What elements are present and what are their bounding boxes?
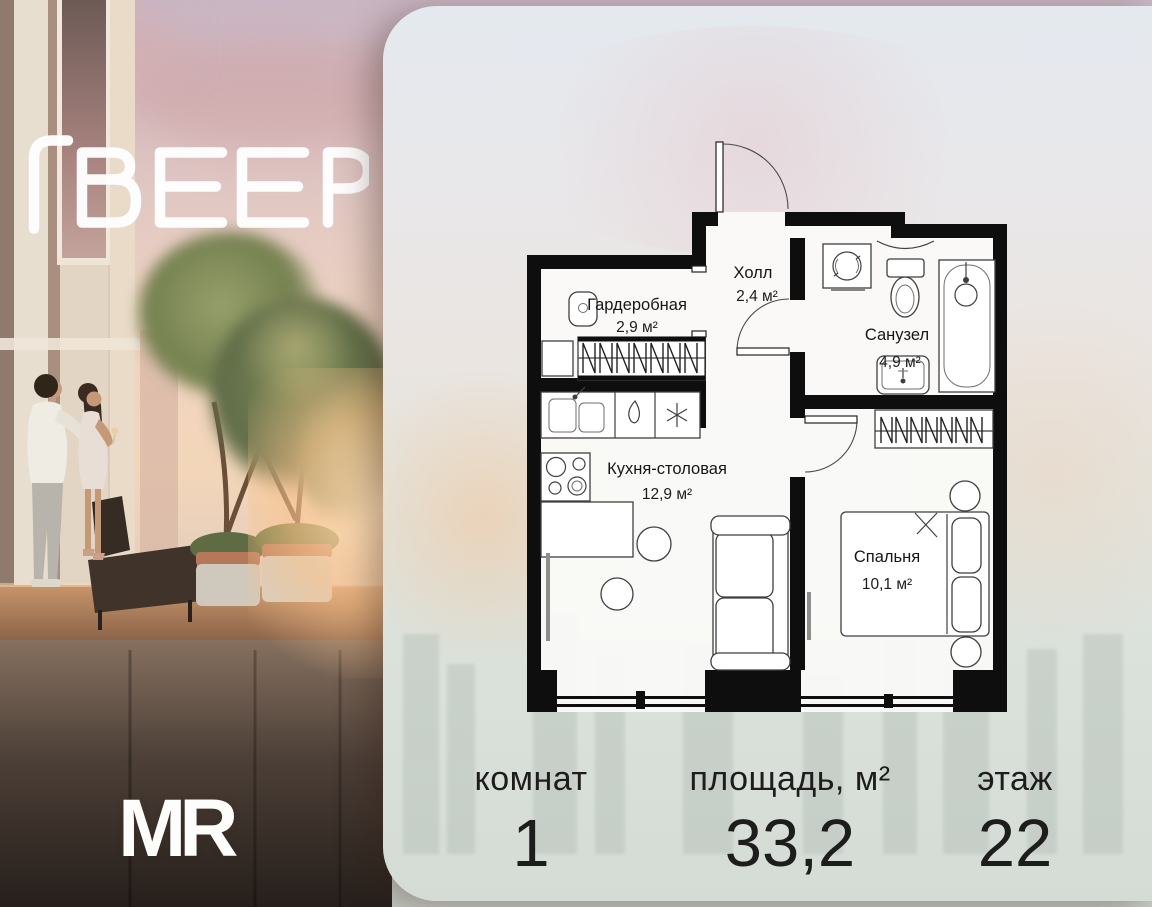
logo-letter-e1 xyxy=(160,153,222,223)
room-label: Холл xyxy=(734,264,773,282)
bathtub xyxy=(939,260,995,392)
spec-rooms: комнат 1 xyxy=(441,762,621,877)
room-area: 2,9 м² xyxy=(616,319,658,336)
sofa xyxy=(711,516,790,670)
logo-letter-r xyxy=(328,153,368,223)
room-area: 2,4 м² xyxy=(736,288,778,305)
spec-area-value: 33,2 xyxy=(620,810,960,877)
room-area: 4,9 м² xyxy=(879,354,921,371)
wardrobe-rack xyxy=(578,337,705,380)
chair xyxy=(601,578,633,610)
spec-floor: этаж 22 xyxy=(925,762,1105,877)
entrance-door xyxy=(716,142,788,212)
bed xyxy=(841,512,989,636)
logo-letter-v xyxy=(82,153,136,223)
floor-plan: Гардеробная 2,9 м² Холл 2,4 м² Санузел 4… xyxy=(525,140,1010,715)
logo-letter-v-hook xyxy=(34,141,68,229)
spec-area: площадь, м² 33,2 xyxy=(620,762,960,877)
room-label: Гардеробная xyxy=(587,296,687,314)
mr-group-logo: MR xyxy=(118,788,232,870)
spec-area-label: площадь, м² xyxy=(620,762,960,796)
logo-letter-e2 xyxy=(242,153,304,223)
spec-rooms-value: 1 xyxy=(441,810,621,877)
room-area: 12,9 м² xyxy=(642,486,692,503)
bedroom-wardrobe-rack xyxy=(875,410,993,448)
spec-rooms-label: комнат xyxy=(441,762,621,796)
listing-card: ВЕЕР MR xyxy=(0,0,1152,907)
radiator xyxy=(807,592,811,640)
radiator xyxy=(546,553,550,641)
washing-machine xyxy=(823,244,871,290)
dining-table xyxy=(541,502,633,557)
stove xyxy=(541,453,590,501)
spec-floor-value: 22 xyxy=(925,810,1105,877)
nightstand xyxy=(951,637,981,667)
room-label: Кухня-столовая xyxy=(607,460,727,478)
room-label: Спальня xyxy=(854,548,920,566)
room-area: 10,1 м² xyxy=(862,576,912,593)
nightstand xyxy=(950,481,980,511)
room-label: Санузел xyxy=(865,326,929,344)
chair xyxy=(637,527,671,561)
veer-logo: ВЕЕР xyxy=(24,128,369,234)
duct-niche xyxy=(542,341,573,376)
spec-floor-label: этаж xyxy=(925,762,1105,796)
